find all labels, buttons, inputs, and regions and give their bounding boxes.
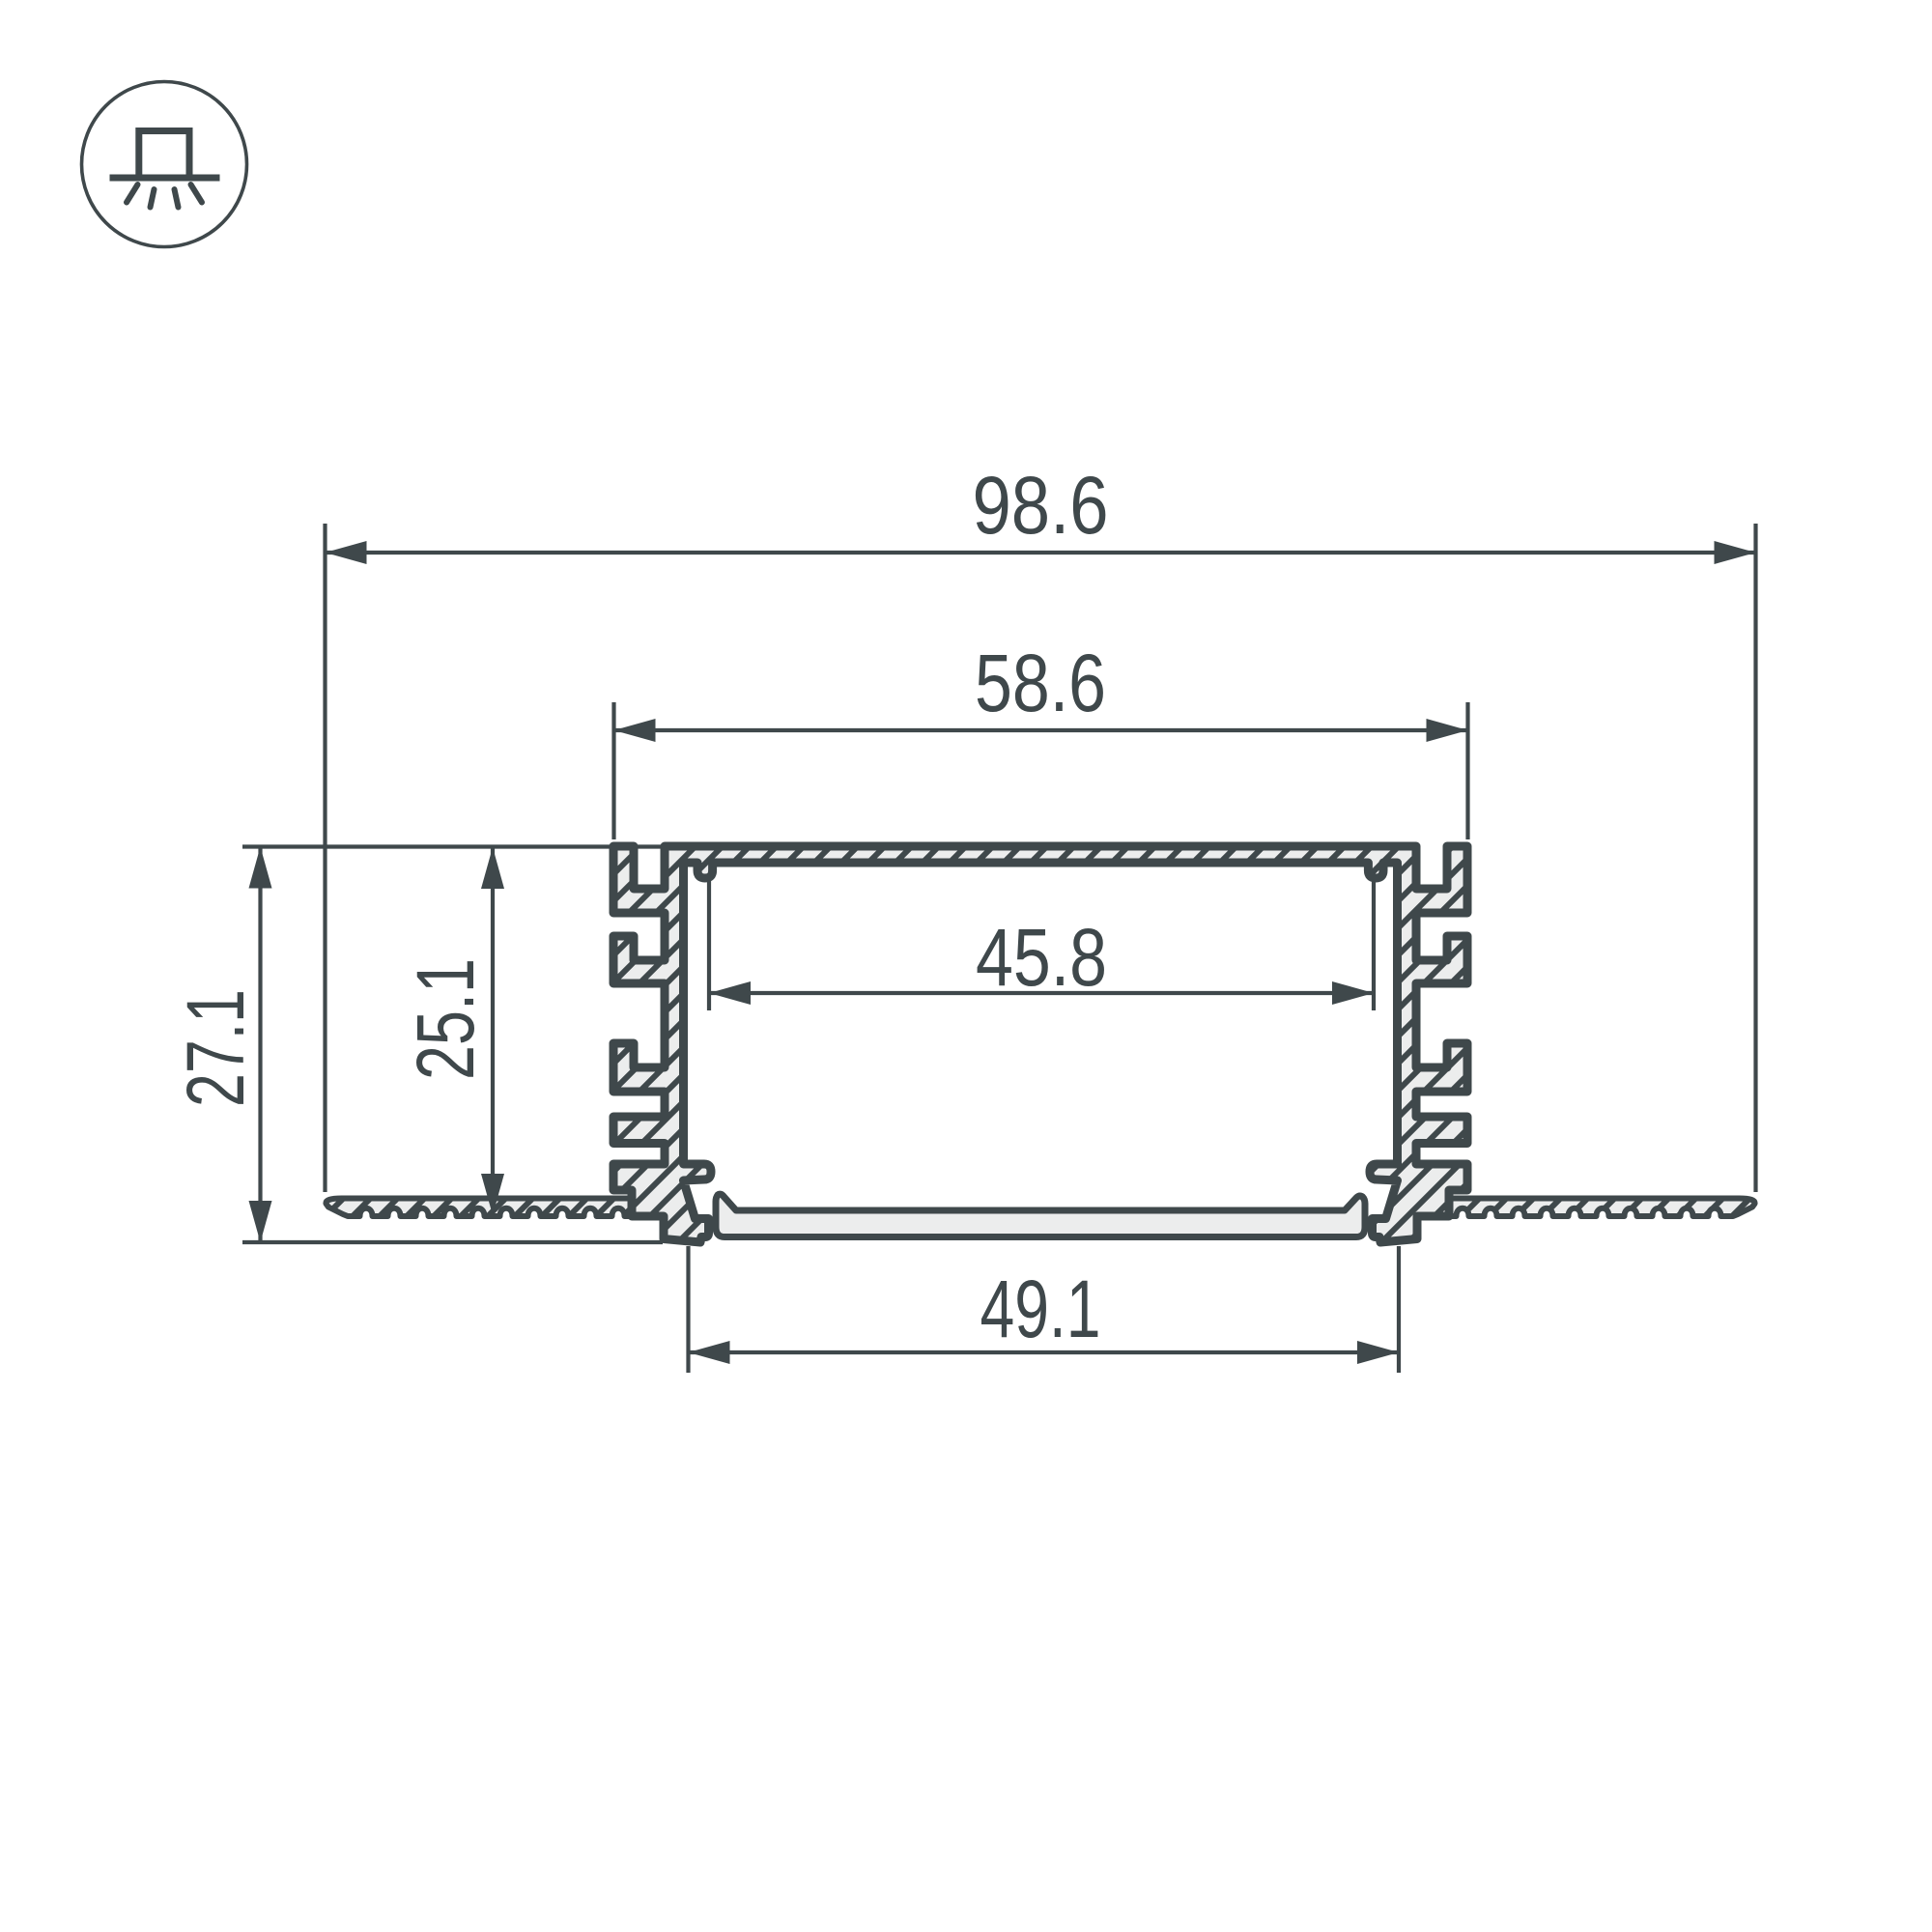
svg-text:58.6: 58.6 <box>975 638 1106 728</box>
svg-text:45.8: 45.8 <box>976 912 1107 1003</box>
svg-text:49.1: 49.1 <box>980 1264 1101 1354</box>
svg-text:98.6: 98.6 <box>973 460 1109 551</box>
svg-text:25.1: 25.1 <box>400 958 491 1080</box>
svg-text:27.1: 27.1 <box>170 989 261 1107</box>
